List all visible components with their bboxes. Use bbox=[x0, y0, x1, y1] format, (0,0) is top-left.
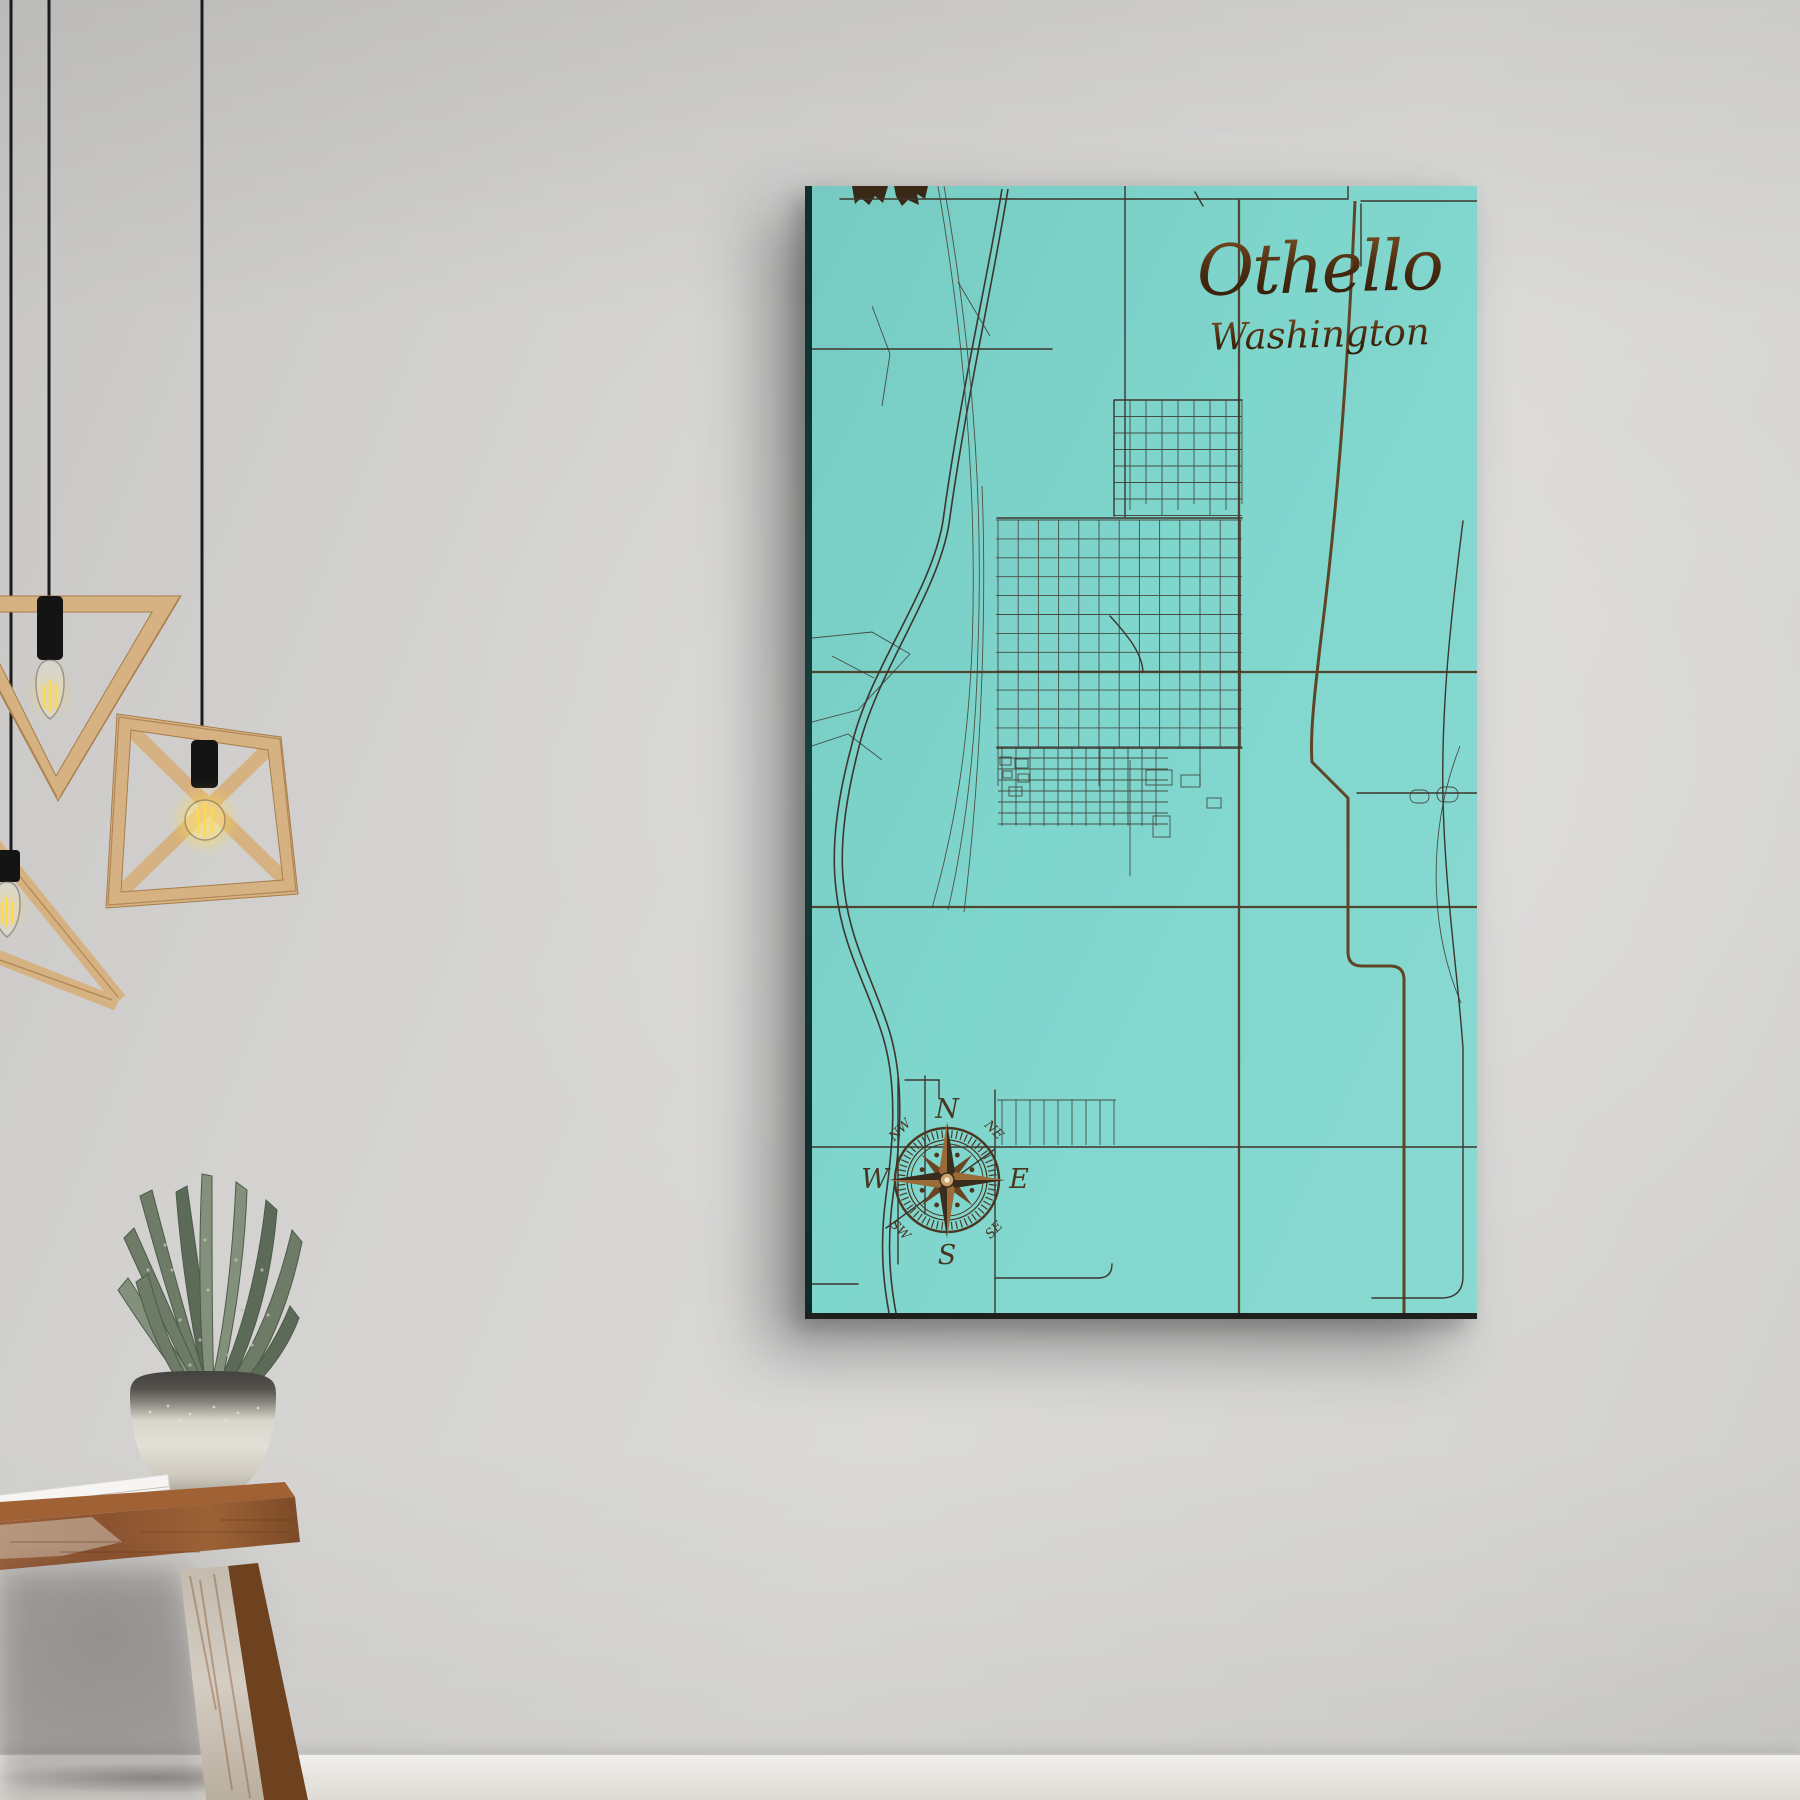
compass-star bbox=[889, 1122, 1005, 1238]
compass-label-e: E bbox=[1008, 1164, 1029, 1195]
street-grid-north bbox=[1114, 400, 1242, 516]
triangle-pendant-frame bbox=[0, 596, 181, 801]
compass-label-n: N bbox=[934, 1094, 960, 1125]
compass-rose: N S E W NW NE SW SE bbox=[861, 1094, 1029, 1271]
highway bbox=[1311, 201, 1404, 1313]
under-stool-shadow bbox=[0, 1570, 215, 1800]
canvas-left-edge bbox=[805, 186, 812, 1319]
map-face: N S E W NW NE SW SE Othello Washington bbox=[812, 186, 1477, 1313]
compass-label-w: W bbox=[861, 1164, 891, 1195]
map-subtitle: Washington bbox=[1209, 310, 1430, 359]
bulb-socket-2 bbox=[191, 740, 218, 788]
railroad bbox=[932, 186, 984, 912]
pendant-lights bbox=[0, 0, 360, 1100]
street-grid-main bbox=[996, 520, 1242, 786]
compass-label-nw: NW bbox=[886, 1115, 916, 1145]
edison-bulb-1 bbox=[33, 660, 67, 719]
agave-plant bbox=[118, 1174, 302, 1402]
city-street-map: N S E W NW NE SW SE Othello Washington bbox=[812, 186, 1477, 1313]
map-title: Othello bbox=[1196, 224, 1443, 312]
field-boundaries bbox=[812, 282, 990, 760]
compass-label-s: S bbox=[938, 1240, 957, 1271]
rural-roads bbox=[812, 186, 1477, 1313]
edison-bulb-2 bbox=[179, 794, 231, 846]
street-grid-comb bbox=[997, 1100, 1116, 1145]
street-grid-south bbox=[998, 748, 1168, 826]
edison-bulb-3 bbox=[0, 882, 23, 937]
map-canvas: N S E W NW NE SW SE Othello Washington bbox=[805, 186, 1477, 1319]
bulb-socket-1 bbox=[37, 596, 63, 660]
east-canal bbox=[1372, 521, 1463, 1298]
bulb-socket-3 bbox=[0, 850, 20, 882]
compass-label-ne: NE bbox=[980, 1117, 1006, 1143]
room-scene: N S E W NW NE SW SE Othello Washington bbox=[0, 0, 1800, 1800]
compass-label-se: SE bbox=[983, 1218, 1007, 1242]
engraved-tree-mark bbox=[852, 186, 928, 206]
canvas-bottom-edge bbox=[805, 1313, 1477, 1319]
stool-vignette bbox=[0, 1150, 420, 1800]
